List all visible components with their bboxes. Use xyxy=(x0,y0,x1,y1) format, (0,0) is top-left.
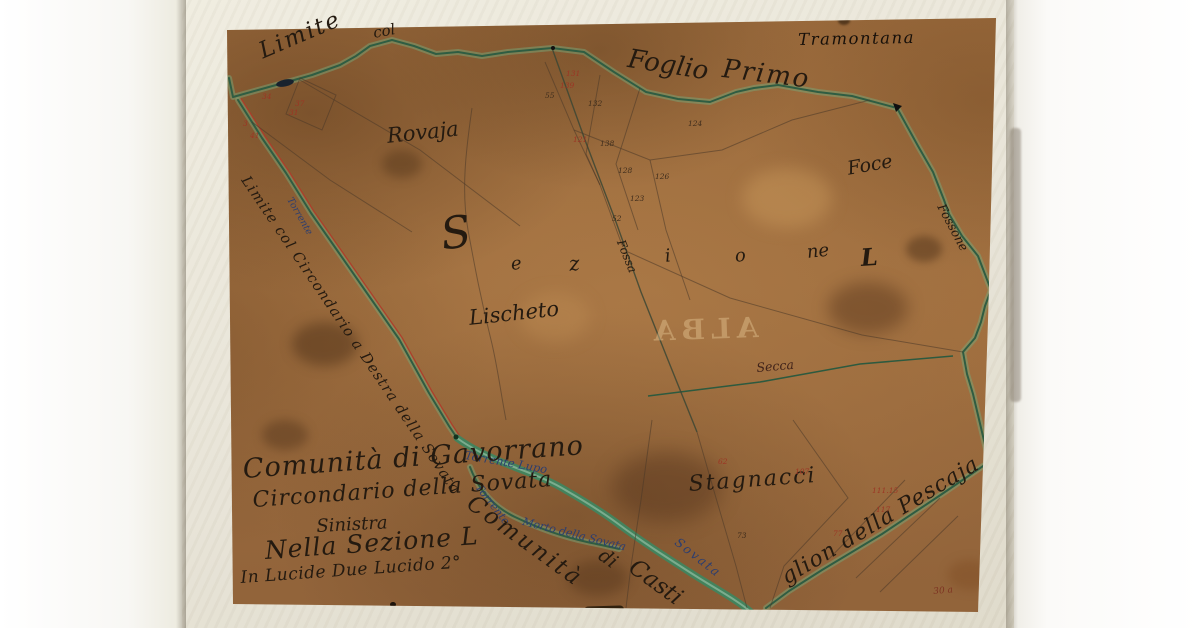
parcel-number: 55 xyxy=(545,92,555,100)
label-tramontana: Tramontana xyxy=(798,30,915,49)
mat-shadow-band xyxy=(1010,128,1021,402)
parcel-number: 52 xyxy=(612,215,622,223)
label-sezione-z: z xyxy=(568,253,581,274)
parcel-number: 117 xyxy=(876,506,890,514)
mat-edge-shadow-left xyxy=(176,0,186,628)
parcel-number: 138 xyxy=(600,140,614,148)
label-sezione-s: S xyxy=(438,210,474,258)
map-photo: Limite col Foglio Primo Tramontana Rovaj… xyxy=(0,0,1200,628)
photo-background-left xyxy=(0,0,182,628)
label-sezione-o: o xyxy=(734,247,747,266)
parcel-number: 139 xyxy=(560,82,574,90)
label-sezione-l: L xyxy=(860,245,879,270)
parcel-number: 111.15 xyxy=(872,487,898,495)
parcel-number: 126 xyxy=(655,173,669,181)
corner-note: 30 a xyxy=(933,586,953,597)
parcel-number: 132 xyxy=(588,100,602,108)
label-secca: Secca xyxy=(756,359,794,375)
parcel-number: 128 xyxy=(618,167,632,175)
parcel-number: 73 xyxy=(737,532,747,540)
parcel-number: 121 xyxy=(573,136,587,144)
parcel-number: 107 xyxy=(795,468,809,476)
label-col: col xyxy=(372,22,397,41)
parcel-number: 31 xyxy=(289,109,299,117)
parcel-number: 37 xyxy=(295,100,305,108)
parcel-number: 62 xyxy=(718,458,728,466)
photo-background-right xyxy=(1014,0,1200,628)
parcel-number: 3 xyxy=(243,120,248,128)
parcel-number: 123 xyxy=(630,195,644,203)
parcel-number: 124 xyxy=(688,120,702,128)
parcel-number: 77 xyxy=(833,530,843,538)
parcel-number: 41 xyxy=(250,132,260,140)
label-sezione-e: e xyxy=(510,255,522,274)
parcel-number: 34 xyxy=(262,93,272,101)
label-sezione-ne: ne xyxy=(806,242,830,262)
bleed-through-text: ALBA xyxy=(647,314,759,346)
parcel-number: 131 xyxy=(566,70,580,78)
